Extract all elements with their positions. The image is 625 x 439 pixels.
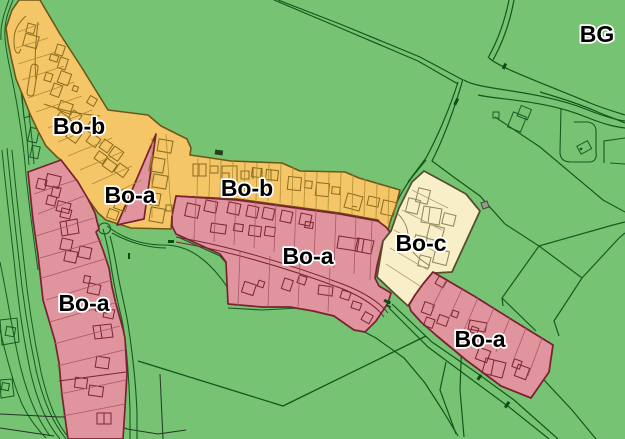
svg-text:Bo-a: Bo-a [104, 182, 155, 208]
svg-text:Bo-a: Bo-a [454, 326, 505, 352]
svg-text:Bo-b: Bo-b [221, 175, 273, 201]
svg-text:BG: BG [580, 21, 615, 47]
svg-text:Bo-a: Bo-a [282, 243, 333, 269]
svg-text:Bo-b: Bo-b [53, 113, 105, 139]
svg-text:Bo-a: Bo-a [58, 290, 109, 316]
svg-text:Bo-c: Bo-c [395, 230, 446, 256]
